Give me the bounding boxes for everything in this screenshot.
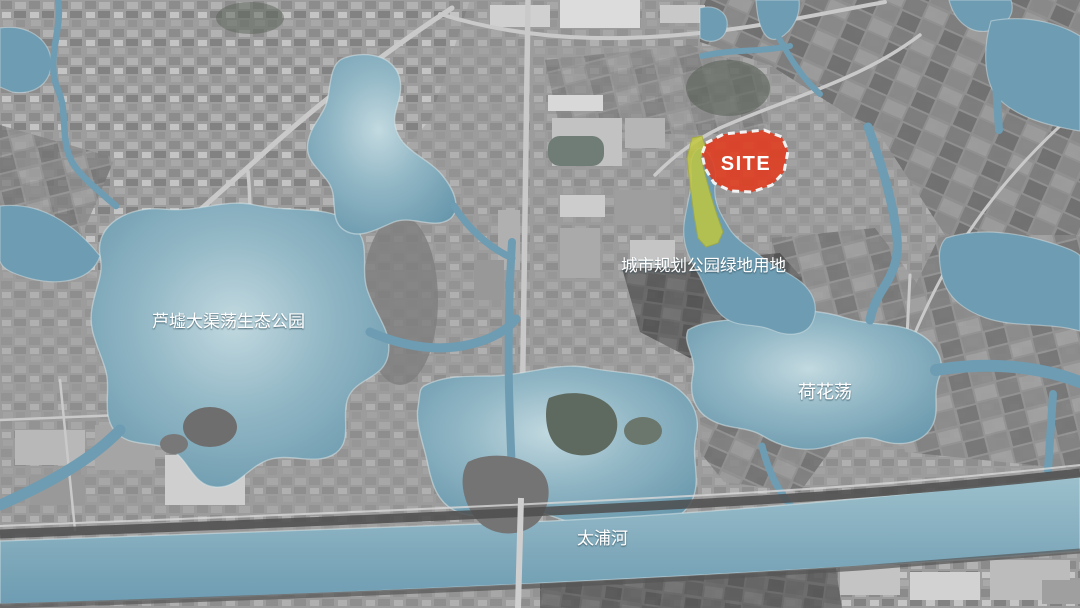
- site-label: SITE: [721, 153, 771, 175]
- label-taipu-river: 太浦河: [577, 529, 628, 548]
- river-bridge: [518, 498, 521, 608]
- map-canvas: SITE 城市规划公园绿地用地 芦墟大渠荡生态公园 荷花荡 太浦河: [0, 0, 1080, 608]
- aerial-map: SITE 城市规划公园绿地用地 芦墟大渠荡生态公园 荷花荡 太浦河: [0, 0, 1080, 608]
- label-luxu-park: 芦墟大渠荡生态公园: [152, 312, 305, 331]
- label-hehua-lake: 荷花荡: [798, 382, 852, 402]
- label-green-land: 城市规划公园绿地用地: [621, 256, 786, 275]
